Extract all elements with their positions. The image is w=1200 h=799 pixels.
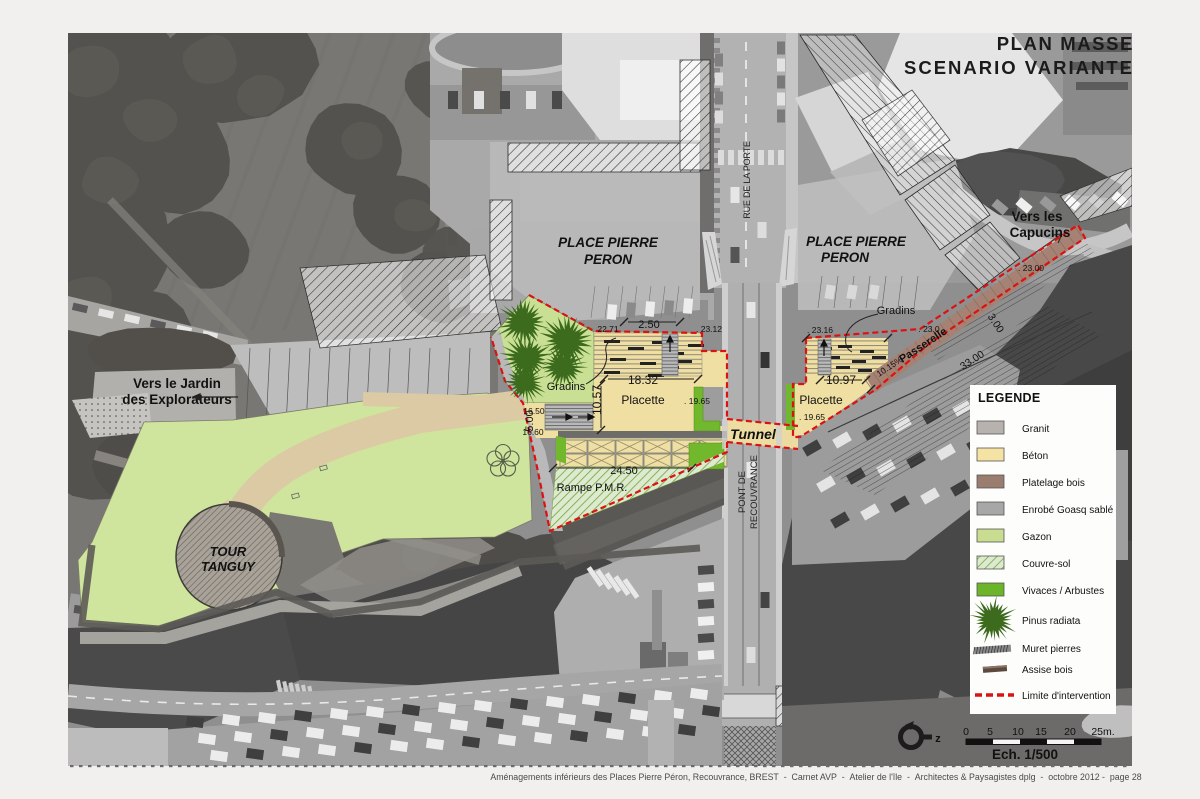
svg-text:0: 0 <box>963 726 969 738</box>
svg-text:Gradins: Gradins <box>877 305 916 317</box>
svg-text:24.50: 24.50 <box>610 465 638 477</box>
svg-text:TANGUY: TANGUY <box>201 559 256 574</box>
svg-text:Gazon: Gazon <box>1022 532 1051 543</box>
svg-text:Béton: Béton <box>1022 451 1048 462</box>
svg-text:. 23.0: . 23.0 <box>918 324 940 334</box>
svg-text:Tunnel: Tunnel <box>730 426 777 442</box>
svg-text:. 23.12: . 23.12 <box>696 324 722 334</box>
svg-text:10: 10 <box>1012 726 1024 738</box>
svg-text:22.71: 22.71 <box>597 324 619 334</box>
svg-text:Placette: Placette <box>621 393 665 407</box>
svg-text:20: 20 <box>1064 726 1076 738</box>
svg-text:Enrobé Goasq sablé: Enrobé Goasq sablé <box>1022 505 1114 516</box>
svg-text:LEGENDE: LEGENDE <box>978 391 1041 405</box>
svg-text:Placette: Placette <box>799 393 843 407</box>
svg-text:10.57: 10.57 <box>590 385 604 415</box>
svg-text:Muret pierres: Muret pierres <box>1022 644 1081 655</box>
svg-text:Vers les: Vers les <box>1011 209 1062 224</box>
svg-text:Couvre-sol: Couvre-sol <box>1022 559 1070 570</box>
svg-text:Limite d'intervention: Limite d'intervention <box>1022 691 1111 702</box>
svg-text:PLACE PIERRE: PLACE PIERRE <box>558 235 659 250</box>
svg-text:15: 15 <box>1035 726 1047 738</box>
svg-text:5: 5 <box>987 726 993 738</box>
svg-text:des Explorateurs: des Explorateurs <box>122 392 232 407</box>
svg-text:16.60: 16.60 <box>522 427 544 437</box>
svg-text:. 23.16: . 23.16 <box>807 325 833 335</box>
svg-text:Pinus radiata: Pinus radiata <box>1022 616 1081 627</box>
svg-text:Rampe P.M.R.: Rampe P.M.R. <box>557 482 628 494</box>
svg-text:Assise bois: Assise bois <box>1022 665 1073 676</box>
svg-text:. 19.65: . 19.65 <box>684 396 710 406</box>
svg-text:PONT DE: PONT DE <box>737 471 748 513</box>
svg-text:16.50: 16.50 <box>523 406 545 416</box>
svg-text:Capucins: Capucins <box>1010 225 1071 240</box>
svg-text:TOUR: TOUR <box>210 544 247 559</box>
svg-text:PLACE PIERRE: PLACE PIERRE <box>806 234 907 249</box>
svg-text:PERON: PERON <box>584 252 632 267</box>
svg-text:Aménagements inférieurs des Pl: Aménagements inférieurs des Places Pierr… <box>490 772 1141 782</box>
svg-text:Platelage bois: Platelage bois <box>1022 478 1085 489</box>
svg-text:Granit: Granit <box>1022 424 1049 435</box>
svg-text:Ech. 1/500: Ech. 1/500 <box>992 747 1058 762</box>
svg-text:PLAN MASSE: PLAN MASSE <box>997 33 1134 54</box>
svg-text:SCENARIO VARIANTE: SCENARIO VARIANTE <box>904 57 1134 78</box>
svg-text:18.32: 18.32 <box>628 373 658 387</box>
svg-text:25m.: 25m. <box>1091 726 1114 738</box>
svg-text:2.50: 2.50 <box>638 319 659 331</box>
svg-text:RECOUVRANCE: RECOUVRANCE <box>749 455 760 529</box>
svg-text:. 19.65: . 19.65 <box>799 412 825 422</box>
svg-text:RUE DE LA PORTE: RUE DE LA PORTE <box>742 141 752 219</box>
svg-text:Vers le Jardin: Vers le Jardin <box>133 376 221 391</box>
svg-text:z: z <box>935 733 941 745</box>
svg-text:. 23.00: . 23.00 <box>1018 263 1044 273</box>
svg-text:Vivaces / Arbustes: Vivaces / Arbustes <box>1022 586 1104 597</box>
svg-text:PERON: PERON <box>821 250 869 265</box>
